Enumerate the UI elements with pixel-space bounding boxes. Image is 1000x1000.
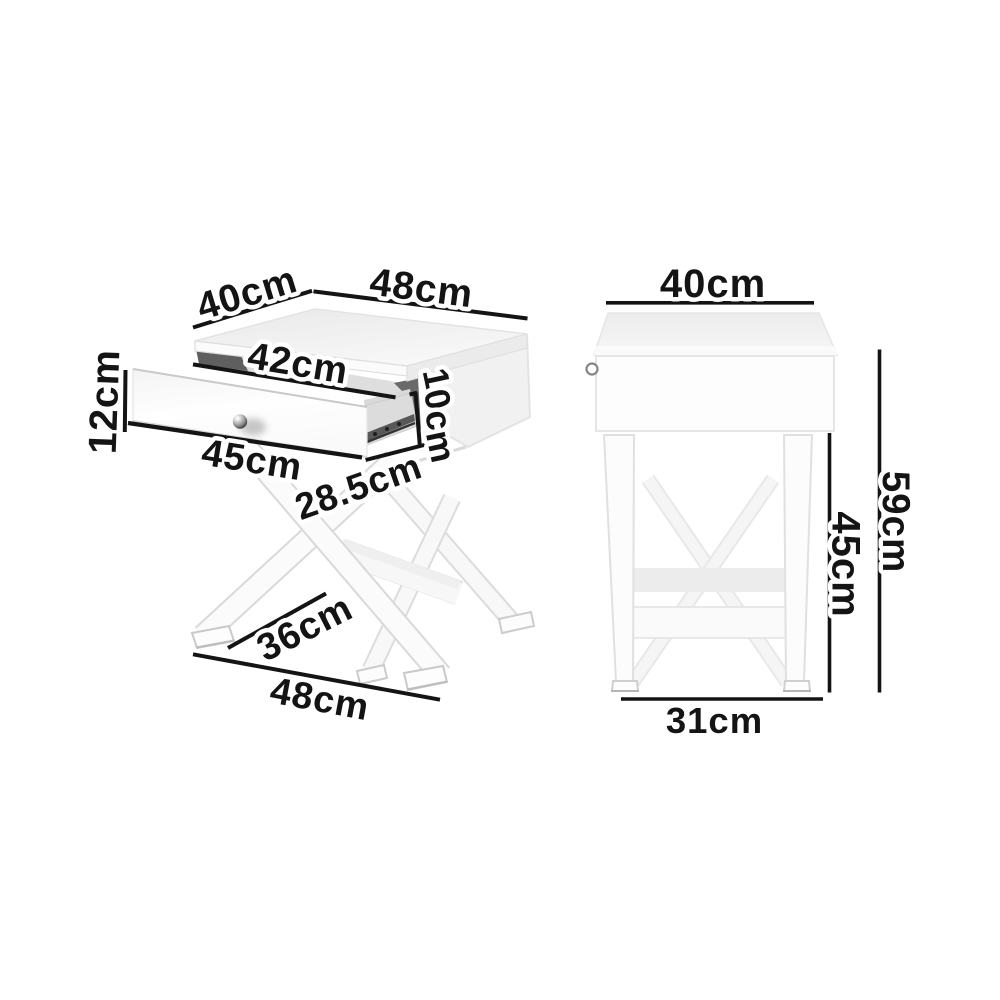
svg-text:40cm: 40cm bbox=[660, 262, 766, 306]
svg-text:48cm: 48cm bbox=[267, 669, 373, 729]
svg-text:12cm: 12cm bbox=[81, 348, 129, 455]
svg-text:59cm: 59cm bbox=[874, 471, 917, 573]
svg-text:48cm: 48cm bbox=[367, 261, 475, 317]
svg-text:36cm: 36cm bbox=[250, 587, 359, 670]
svg-text:10cm: 10cm bbox=[414, 364, 464, 467]
svg-text:45cm: 45cm bbox=[824, 511, 868, 617]
svg-text:31cm: 31cm bbox=[666, 700, 763, 741]
